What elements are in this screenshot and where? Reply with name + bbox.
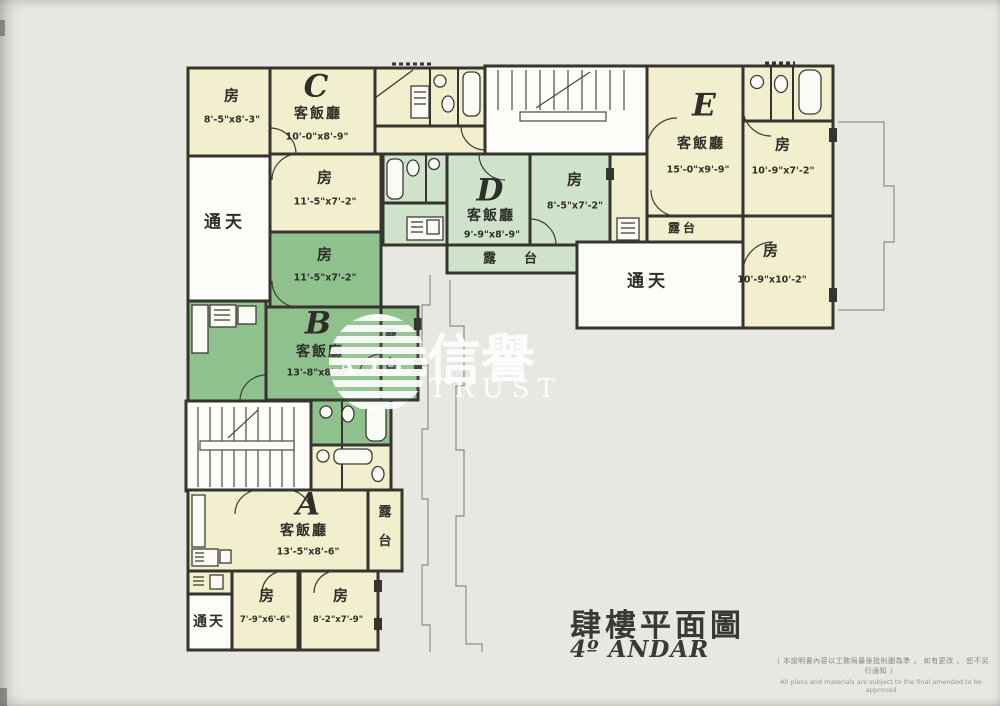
room-label: 房 [224,89,240,104]
room-dim: 8'-5"x8'-3" [204,115,260,125]
unit-letter-a: A [296,490,320,521]
balcony-char: 台 [378,535,391,548]
living-label: 客飯廳 [677,137,725,151]
living-dim: 10'-0"x8'-9" [286,132,349,142]
balcony-label-spaced: 露 台 [483,253,537,266]
balcony-char: 露 [483,253,496,266]
room-c-bed2 [270,154,381,232]
living-dim: 15'-0"x9'-9" [667,165,730,175]
room-dim: 11'-5"x7'-2" [294,197,357,207]
room-dim: 10'-9"x7'-2" [752,166,815,176]
living-dim: 13'-5"x8'-6" [277,547,340,557]
living-label: 客飯廳 [280,524,328,538]
rooms [186,66,833,650]
living-label: 客飯廳 [294,107,342,121]
living-dim: 13'-8"x8'-6" [287,368,350,378]
room-a-bed2 [300,571,378,650]
room-b-bed [270,232,381,307]
balcony-char: 台 [524,253,537,266]
page-subtitle: 4º ANDAR [570,636,709,663]
unit-letter-b: B [305,309,331,340]
scan-artifact [0,688,7,706]
room-e-bed2 [743,216,833,328]
room-label: 房 [259,589,275,604]
room-dim: 8'-2"x7'-9" [313,616,363,625]
floor-plan-drawing [180,60,910,660]
room-dim: 11'-5"x7'-2" [294,273,357,283]
room-label: 房 [775,138,791,153]
disclaimer-cjk: （ 本說明書內容以工務局最後批則圖為準 ， 如有更改 ， 恕不另行通知 ） [770,656,992,676]
staircase-top [485,66,647,155]
room-c-bed1 [188,68,270,156]
room-dim: 7'-9"x6'-6" [240,616,290,625]
room-label: 房 [763,244,779,259]
room-label: 房 [317,248,333,263]
living-dim: 9'-9"x8'-9" [464,230,520,240]
balcony-label: 露台 [668,222,698,234]
lightwell-label: 通天 [204,215,246,232]
unit-letter-d: D [477,176,504,207]
room-c-hall [375,126,485,154]
scanned-page: 房 8'-5"x8'-3" C 客飯廳 10'-0"x8'-9" 房 11'-5… [0,0,1000,706]
room-dim: 10'-9"x10'-2" [737,275,806,285]
balcony-char: 露 [378,506,391,519]
room-dim: 8'-5"x7'-2" [547,201,603,211]
disclaimer: （ 本說明書內容以工務局最後批則圖為準 ， 如有更改 ， 恕不另行通知 ） Al… [770,656,992,694]
unit-letter-c: C [304,72,329,103]
scan-artifact [0,20,5,36]
living-label: 客飯廳 [467,209,515,223]
balcony-char: 露 [384,329,397,342]
floor-plan: 房 8'-5"x8'-3" C 客飯廳 10'-0"x8'-9" 房 11'-5… [180,60,910,660]
unit-letter-e: E [692,91,716,122]
balcony-char: 台 [384,358,397,371]
room-label: 房 [333,589,349,604]
room-label: 房 [567,173,583,188]
balcony-label-vertical: 露 台 [378,506,391,548]
balcony-label-vertical: 露 台 [384,329,397,371]
lightwell-label: 通天 [193,615,225,629]
lightwell-label: 通天 [627,274,669,291]
disclaimer-en: All plans and materials are subject to t… [770,678,992,694]
living-label: 客飯廳 [296,345,344,359]
room-label: 房 [317,171,333,186]
